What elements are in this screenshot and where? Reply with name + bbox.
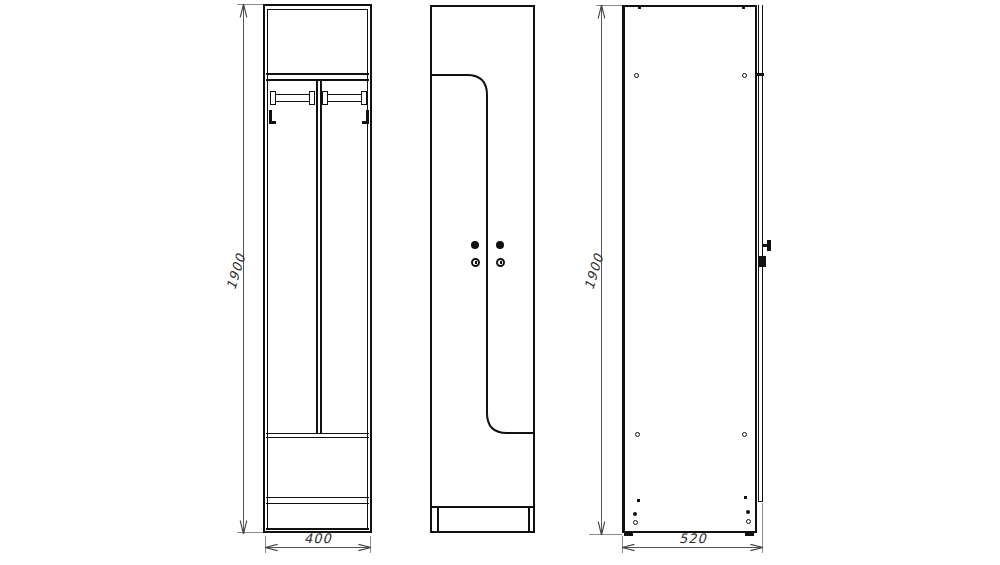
dim-label-front-height: 1900 <box>220 240 252 304</box>
dim-line-front-width <box>265 547 371 548</box>
dim-line-side-depth <box>622 547 763 548</box>
technical-drawing-canvas: 1900 400 1900 520 <box>0 0 1000 565</box>
dim-arrow-right-icon <box>749 543 763 552</box>
dim-arrow-up-icon <box>597 5 606 20</box>
dim-label-side-depth: 520 <box>662 531 724 546</box>
dim-label-side-height: 1900 <box>578 240 610 304</box>
dimensions-layer: 1900 400 1900 520 <box>0 0 1000 565</box>
dim-arrow-down-icon <box>597 520 606 535</box>
dim-arrow-left-icon <box>622 543 636 552</box>
dim-arrow-left-icon <box>265 543 279 552</box>
dim-label-front-width: 400 <box>287 531 349 546</box>
dim-arrow-down-icon <box>239 519 248 534</box>
dim-arrow-right-icon <box>357 543 371 552</box>
dim-arrow-up-icon <box>239 4 248 19</box>
